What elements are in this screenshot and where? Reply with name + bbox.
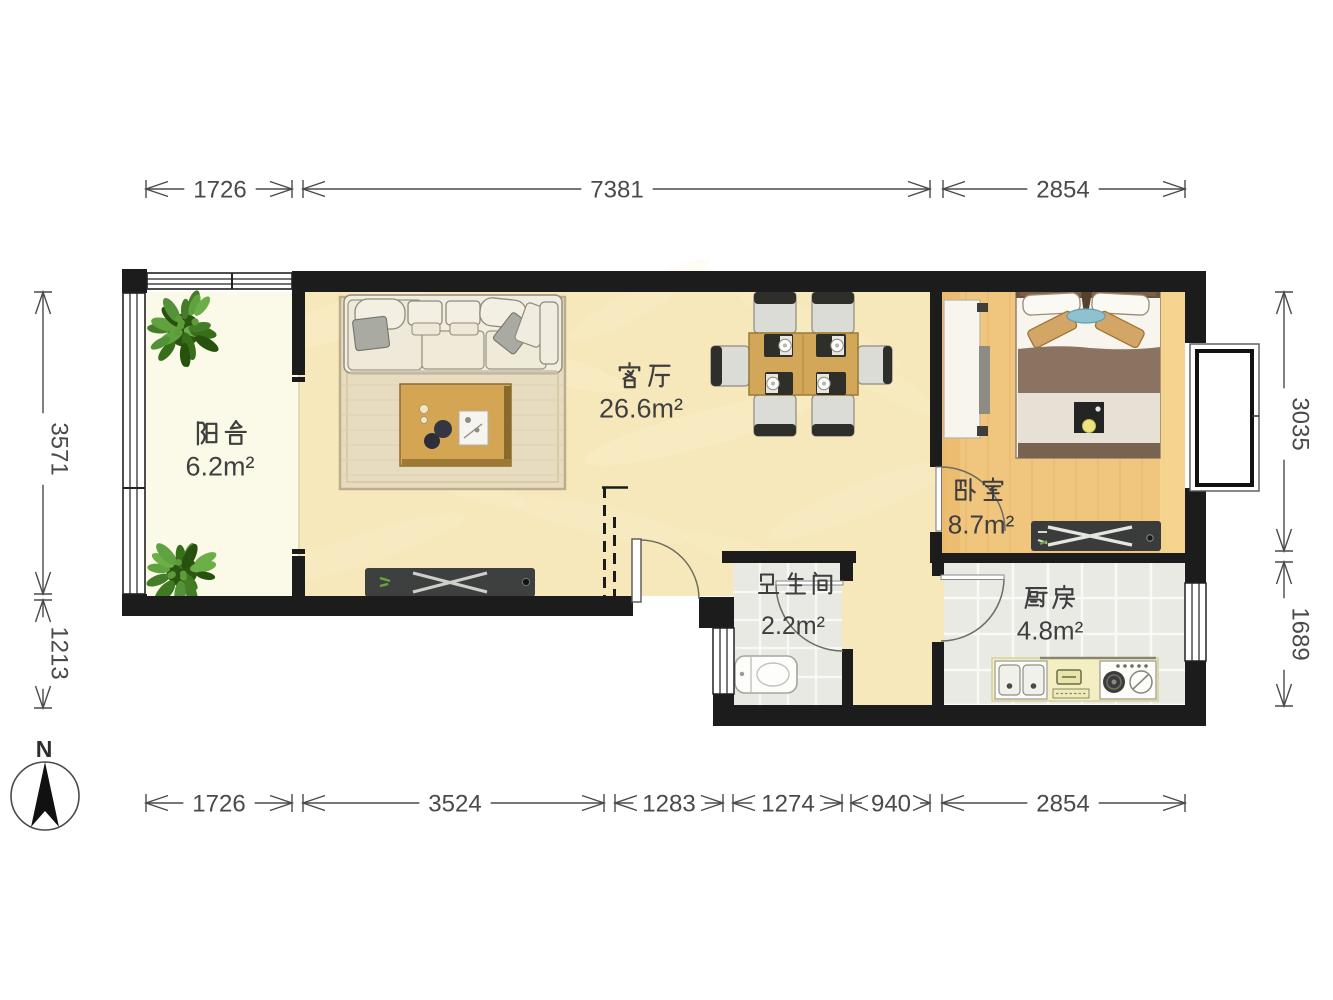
svg-text:2.2m²: 2.2m²: [761, 612, 825, 640]
svg-text:1726: 1726: [193, 177, 246, 204]
svg-text:1726: 1726: [192, 791, 245, 818]
svg-text:7381: 7381: [590, 177, 643, 204]
svg-text:1689: 1689: [1287, 607, 1314, 660]
svg-text:3035: 3035: [1287, 397, 1314, 450]
svg-text:6.2m²: 6.2m²: [185, 452, 254, 482]
svg-text:1283: 1283: [642, 791, 695, 818]
svg-text:3524: 3524: [428, 791, 481, 818]
svg-text:2854: 2854: [1036, 177, 1089, 204]
svg-text:4.8m²: 4.8m²: [1017, 615, 1084, 645]
svg-text:3571: 3571: [46, 422, 73, 475]
svg-text:1213: 1213: [46, 626, 73, 679]
svg-text:8.7m²: 8.7m²: [948, 509, 1015, 539]
svg-text:2854: 2854: [1036, 791, 1089, 818]
svg-text:940: 940: [871, 791, 911, 818]
svg-text:N: N: [36, 736, 53, 762]
svg-text:1274: 1274: [761, 791, 814, 818]
svg-text:26.6m²: 26.6m²: [599, 394, 683, 424]
